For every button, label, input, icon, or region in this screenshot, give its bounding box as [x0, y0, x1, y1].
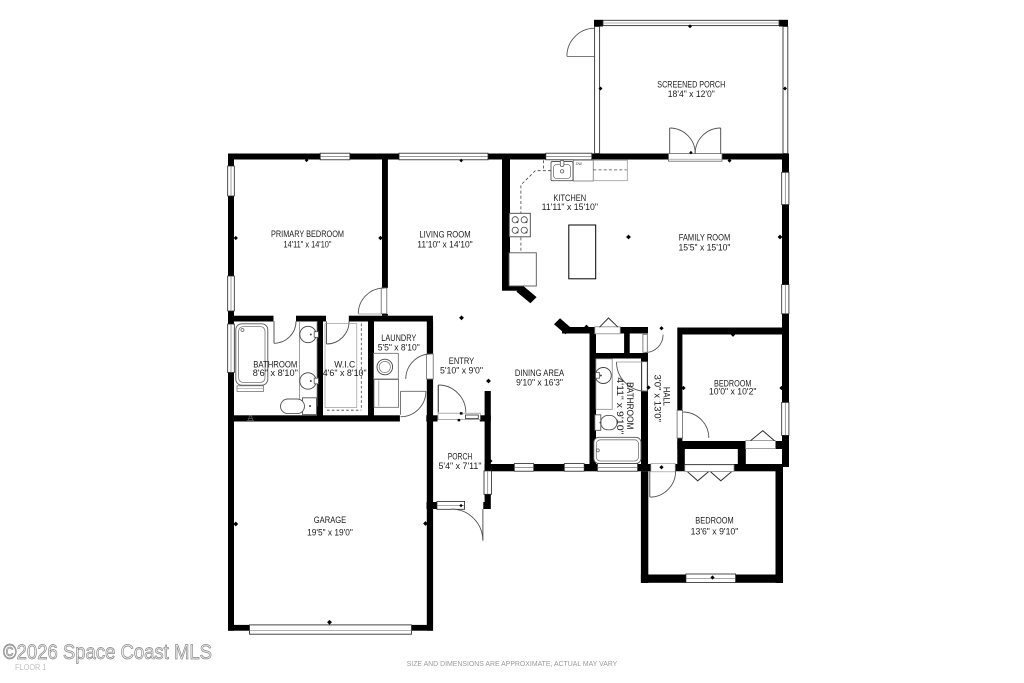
svg-text:PRIMARY BEDROOM: PRIMARY BEDROOM	[271, 229, 344, 239]
svg-text:9'10" x 16'3": 9'10" x 16'3"	[516, 377, 563, 387]
svg-text:11'11" x 15'10": 11'11" x 15'10"	[542, 202, 598, 212]
svg-text:5'5" x 8'10": 5'5" x 8'10"	[378, 342, 420, 352]
svg-text:LIVING ROOM: LIVING ROOM	[419, 229, 470, 239]
svg-text:©2026 Space Coast MLS: ©2026 Space Coast MLS	[3, 640, 212, 664]
svg-text:8'6" x 8'10": 8'6" x 8'10"	[253, 368, 298, 378]
svg-text:FLOOR 1: FLOOR 1	[15, 662, 47, 672]
svg-text:4'6" x 8'10": 4'6" x 8'10"	[323, 368, 367, 378]
svg-text:FAMILY ROOM: FAMILY ROOM	[679, 232, 731, 242]
svg-text:18'4" x 12'0": 18'4" x 12'0"	[668, 89, 715, 99]
svg-text:5'10" x 9'0": 5'10" x 9'0"	[440, 366, 483, 376]
svg-text:19'5" x 19'0": 19'5" x 19'0"	[307, 528, 353, 538]
svg-text:4'11" x 9'10": 4'11" x 9'10"	[615, 377, 625, 434]
svg-text:10'0" x 10'2": 10'0" x 10'2"	[709, 386, 757, 396]
svg-text:15'5" x 15'10": 15'5" x 15'10"	[679, 242, 731, 252]
svg-text:13'6" x 9'10": 13'6" x 9'10"	[691, 526, 739, 536]
svg-text:14'11" x 14'10": 14'11" x 14'10"	[284, 239, 332, 249]
svg-text:5'4" x 7'11": 5'4" x 7'11"	[439, 461, 482, 471]
svg-text:GARAGE: GARAGE	[314, 515, 346, 525]
svg-text:11'10" x 14'10": 11'10" x 14'10"	[417, 239, 472, 249]
svg-text:DW: DW	[576, 162, 582, 166]
svg-text:SIZE AND DIMENSIONS ARE APPROX: SIZE AND DIMENSIONS ARE APPROXIMATE, ACT…	[407, 659, 618, 668]
svg-text:BATHROOM: BATHROOM	[625, 382, 635, 429]
svg-text:PORCH: PORCH	[448, 451, 473, 461]
svg-text:SCREENED PORCH: SCREENED PORCH	[657, 80, 725, 90]
svg-text:LAUNDRY: LAUNDRY	[381, 333, 416, 343]
svg-text:3'0" x 13'0": 3'0" x 13'0"	[652, 375, 662, 423]
svg-text:ENTRY: ENTRY	[449, 356, 474, 366]
svg-text:BEDROOM: BEDROOM	[695, 515, 733, 525]
